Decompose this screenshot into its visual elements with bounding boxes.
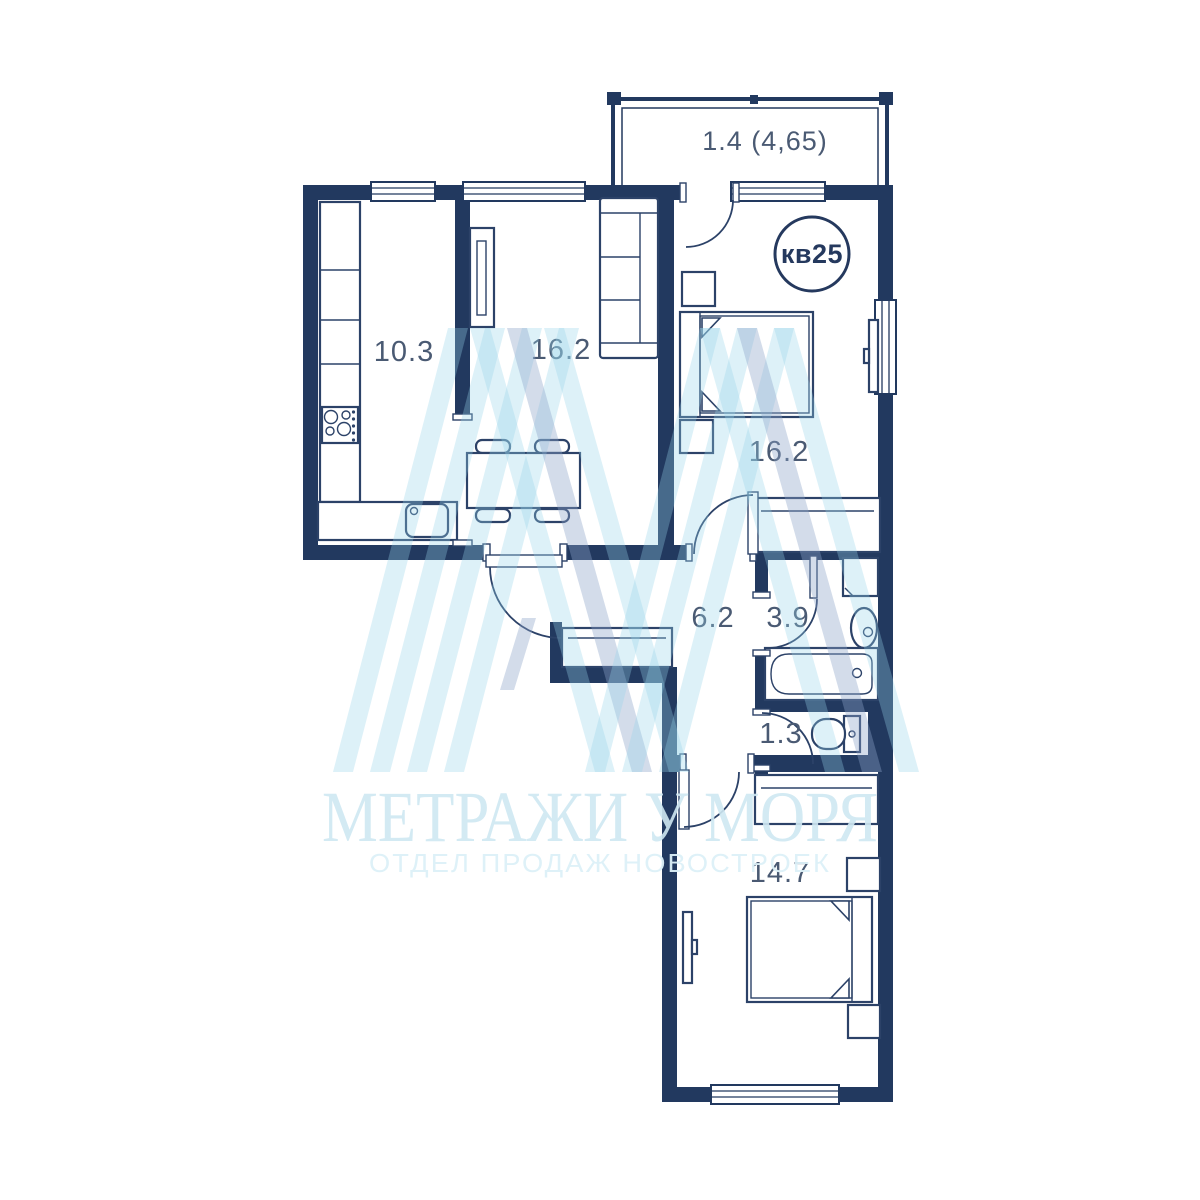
kitchen-fixtures <box>318 202 457 540</box>
sofa-icon <box>600 198 658 358</box>
window <box>371 182 435 201</box>
watermark-subtitle: ОТДЕЛ ПРОДАЖ НОВОСТРОЕК <box>369 848 831 878</box>
tv-panel-icon <box>683 912 697 983</box>
door-jamb <box>733 183 739 202</box>
balcony-corner <box>879 92 893 105</box>
door-arc <box>686 200 733 247</box>
balcony-corner <box>607 92 621 105</box>
tv-panel-icon <box>864 320 878 392</box>
door-jamb <box>753 650 770 656</box>
wall-segment <box>837 1087 893 1102</box>
apartment-number-badge: кв25 <box>775 217 849 291</box>
kitchen-counter-icon <box>320 202 360 502</box>
watermark-logo: МЕТРАЖИ У МОРЯ ОТДЕЛ ПРОДАЖ НОВОСТРОЕК <box>322 328 919 878</box>
wc-area-label: 1.3 <box>759 718 802 750</box>
tv-stand-icon <box>470 228 494 327</box>
door-jamb <box>753 765 770 771</box>
window <box>711 1085 839 1104</box>
door-jamb <box>680 183 686 202</box>
window <box>463 182 585 201</box>
floor-plan: кв25 1.4 (4,65) 10.3 16.2 16.2 6.2 3.9 1… <box>0 0 1200 1200</box>
nightstand-icon <box>847 858 880 891</box>
apartment-number-label: кв25 <box>781 239 843 269</box>
nightstand-icon <box>682 272 715 306</box>
watermark-title: МЕТРАЖИ У МОРЯ <box>322 777 878 857</box>
door-jamb <box>753 592 770 598</box>
nightstand-icon <box>848 1005 880 1038</box>
bed-icon <box>747 897 872 1002</box>
kitchen-area-label: 10.3 <box>374 336 434 368</box>
wall-segment <box>455 200 470 420</box>
floor-plan-page: кв25 1.4 (4,65) 10.3 16.2 16.2 6.2 3.9 1… <box>0 0 1200 1200</box>
stove-icon <box>322 407 358 443</box>
door-jamb <box>748 754 754 773</box>
wall-segment <box>303 185 318 560</box>
balcony-glazing-tick <box>750 95 758 104</box>
window <box>731 182 825 201</box>
wall-segment <box>662 1087 713 1102</box>
balcony-area-label: 1.4 (4,65) <box>702 126 828 156</box>
